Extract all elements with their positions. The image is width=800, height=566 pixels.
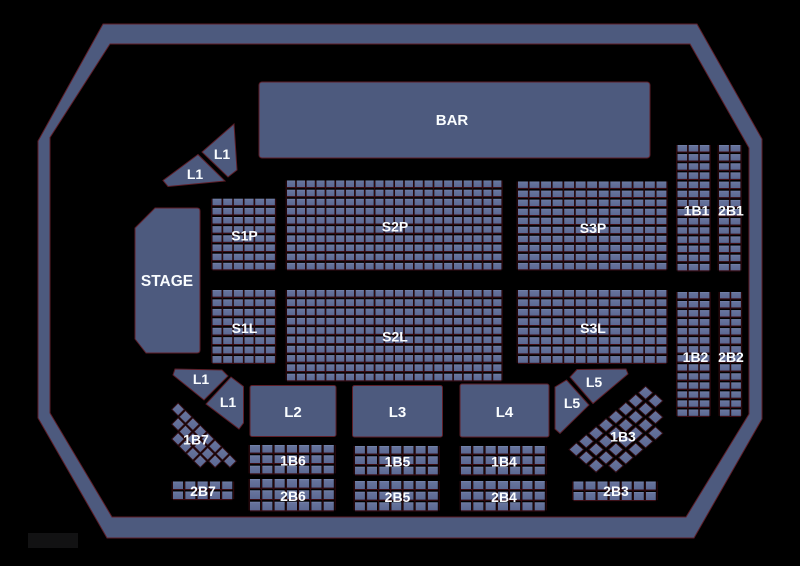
svg-text:2B1: 2B1 — [718, 203, 744, 219]
svg-text:1B3: 1B3 — [610, 429, 636, 445]
svg-text:L1: L1 — [187, 166, 204, 182]
svg-text:2B3: 2B3 — [603, 483, 629, 499]
svg-text:L5: L5 — [586, 374, 603, 390]
svg-text:S3P: S3P — [580, 220, 606, 236]
svg-text:L1: L1 — [220, 394, 237, 410]
svg-text:L3: L3 — [389, 404, 407, 421]
svg-text:L2: L2 — [284, 404, 302, 421]
svg-text:1B6: 1B6 — [280, 453, 306, 469]
svg-text:2B4: 2B4 — [491, 489, 517, 505]
svg-text:2B5: 2B5 — [385, 489, 411, 505]
svg-text:BAR: BAR — [436, 112, 469, 129]
svg-text:STAGE: STAGE — [141, 273, 193, 290]
svg-text:S3L: S3L — [580, 320, 606, 336]
svg-text:L1: L1 — [193, 371, 210, 387]
svg-text:1B7: 1B7 — [183, 432, 209, 448]
svg-text:1B4: 1B4 — [491, 454, 517, 470]
svg-text:2B6: 2B6 — [280, 488, 306, 504]
svg-text:S2L: S2L — [382, 329, 408, 345]
svg-text:2B2: 2B2 — [718, 349, 744, 365]
svg-text:1B5: 1B5 — [385, 454, 411, 470]
svg-text:1B1: 1B1 — [684, 203, 710, 219]
svg-text:L5: L5 — [564, 395, 581, 411]
svg-text:S1L: S1L — [232, 320, 258, 336]
svg-text:L1: L1 — [214, 146, 231, 162]
svg-text:S1P: S1P — [231, 227, 257, 243]
svg-text:2B7: 2B7 — [190, 483, 216, 499]
svg-text:S2P: S2P — [382, 218, 408, 234]
svg-text:L4: L4 — [496, 404, 514, 421]
svg-text:1B2: 1B2 — [683, 349, 709, 365]
